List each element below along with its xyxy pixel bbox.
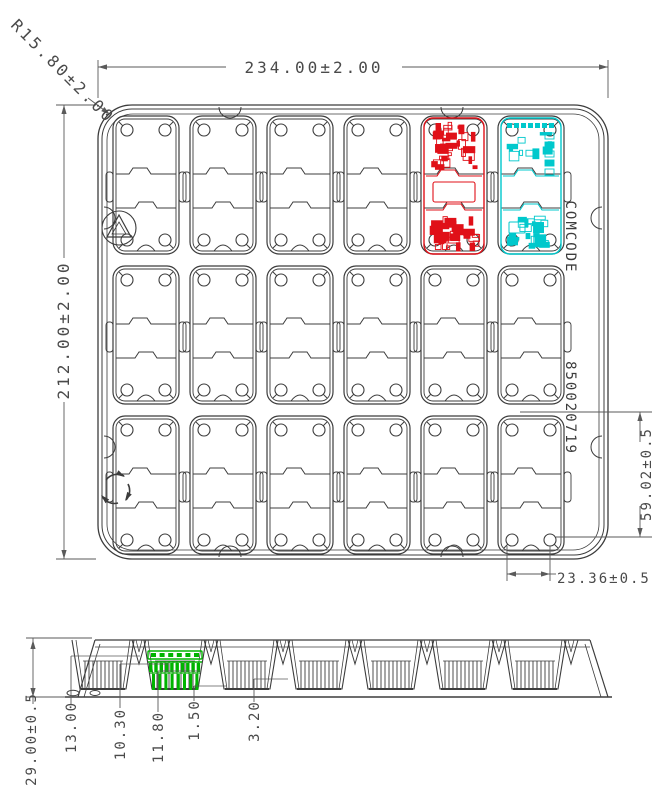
tray-pocket — [337, 266, 417, 404]
tray-pocket — [260, 116, 340, 254]
step-dim-11-80: 11.80 — [151, 711, 167, 763]
tray-pocket — [106, 266, 186, 404]
tray-pocket — [414, 266, 494, 404]
step-dim-3-20: 3.20 — [247, 700, 263, 742]
tray-pocket — [183, 416, 263, 554]
tray-pocket — [183, 116, 263, 254]
step-dim-10-30: 10.30 — [113, 708, 129, 760]
tray-top-view — [98, 105, 608, 559]
tray-pocket — [106, 416, 186, 554]
tray-side-view — [65, 640, 612, 697]
tray-pocket — [491, 116, 571, 254]
pcb-red — [424, 118, 484, 254]
tray-pocket — [491, 416, 571, 554]
tray-pocket — [337, 116, 417, 254]
tray-pocket — [106, 116, 186, 254]
tray-pocket — [414, 416, 494, 554]
tray-technical-drawing: 234.00±2.00 212.00±2.00 R15.80±2.00 59.0… — [0, 0, 655, 789]
comcode-text: COMCODE — [562, 200, 578, 273]
tray-pocket — [260, 266, 340, 404]
tray-pocket — [260, 416, 340, 554]
green-component — [148, 651, 202, 690]
tray-pocket — [337, 416, 417, 554]
height-dimension-label: 212.00±2.00 — [54, 261, 73, 400]
dimension-lines — [26, 60, 652, 712]
pcb-overlays — [424, 118, 561, 254]
recycling-symbols — [101, 211, 136, 503]
pocket-pitch-label: 59.02±0.5 — [639, 427, 655, 521]
overall-height-label: 29.00±0.5 — [24, 692, 40, 786]
step-dim-1-50: 1.50 — [187, 699, 203, 741]
tray-pocket — [183, 266, 263, 404]
step-dim-13: 13.00 — [64, 701, 80, 753]
part-number-text: 850020719 — [562, 361, 578, 455]
pcb-cyan — [501, 118, 561, 254]
pocket-width-label: 23.36±0.5 — [557, 571, 651, 587]
tray-pocket — [491, 266, 571, 404]
width-dimension-label: 234.00±2.00 — [245, 58, 384, 77]
